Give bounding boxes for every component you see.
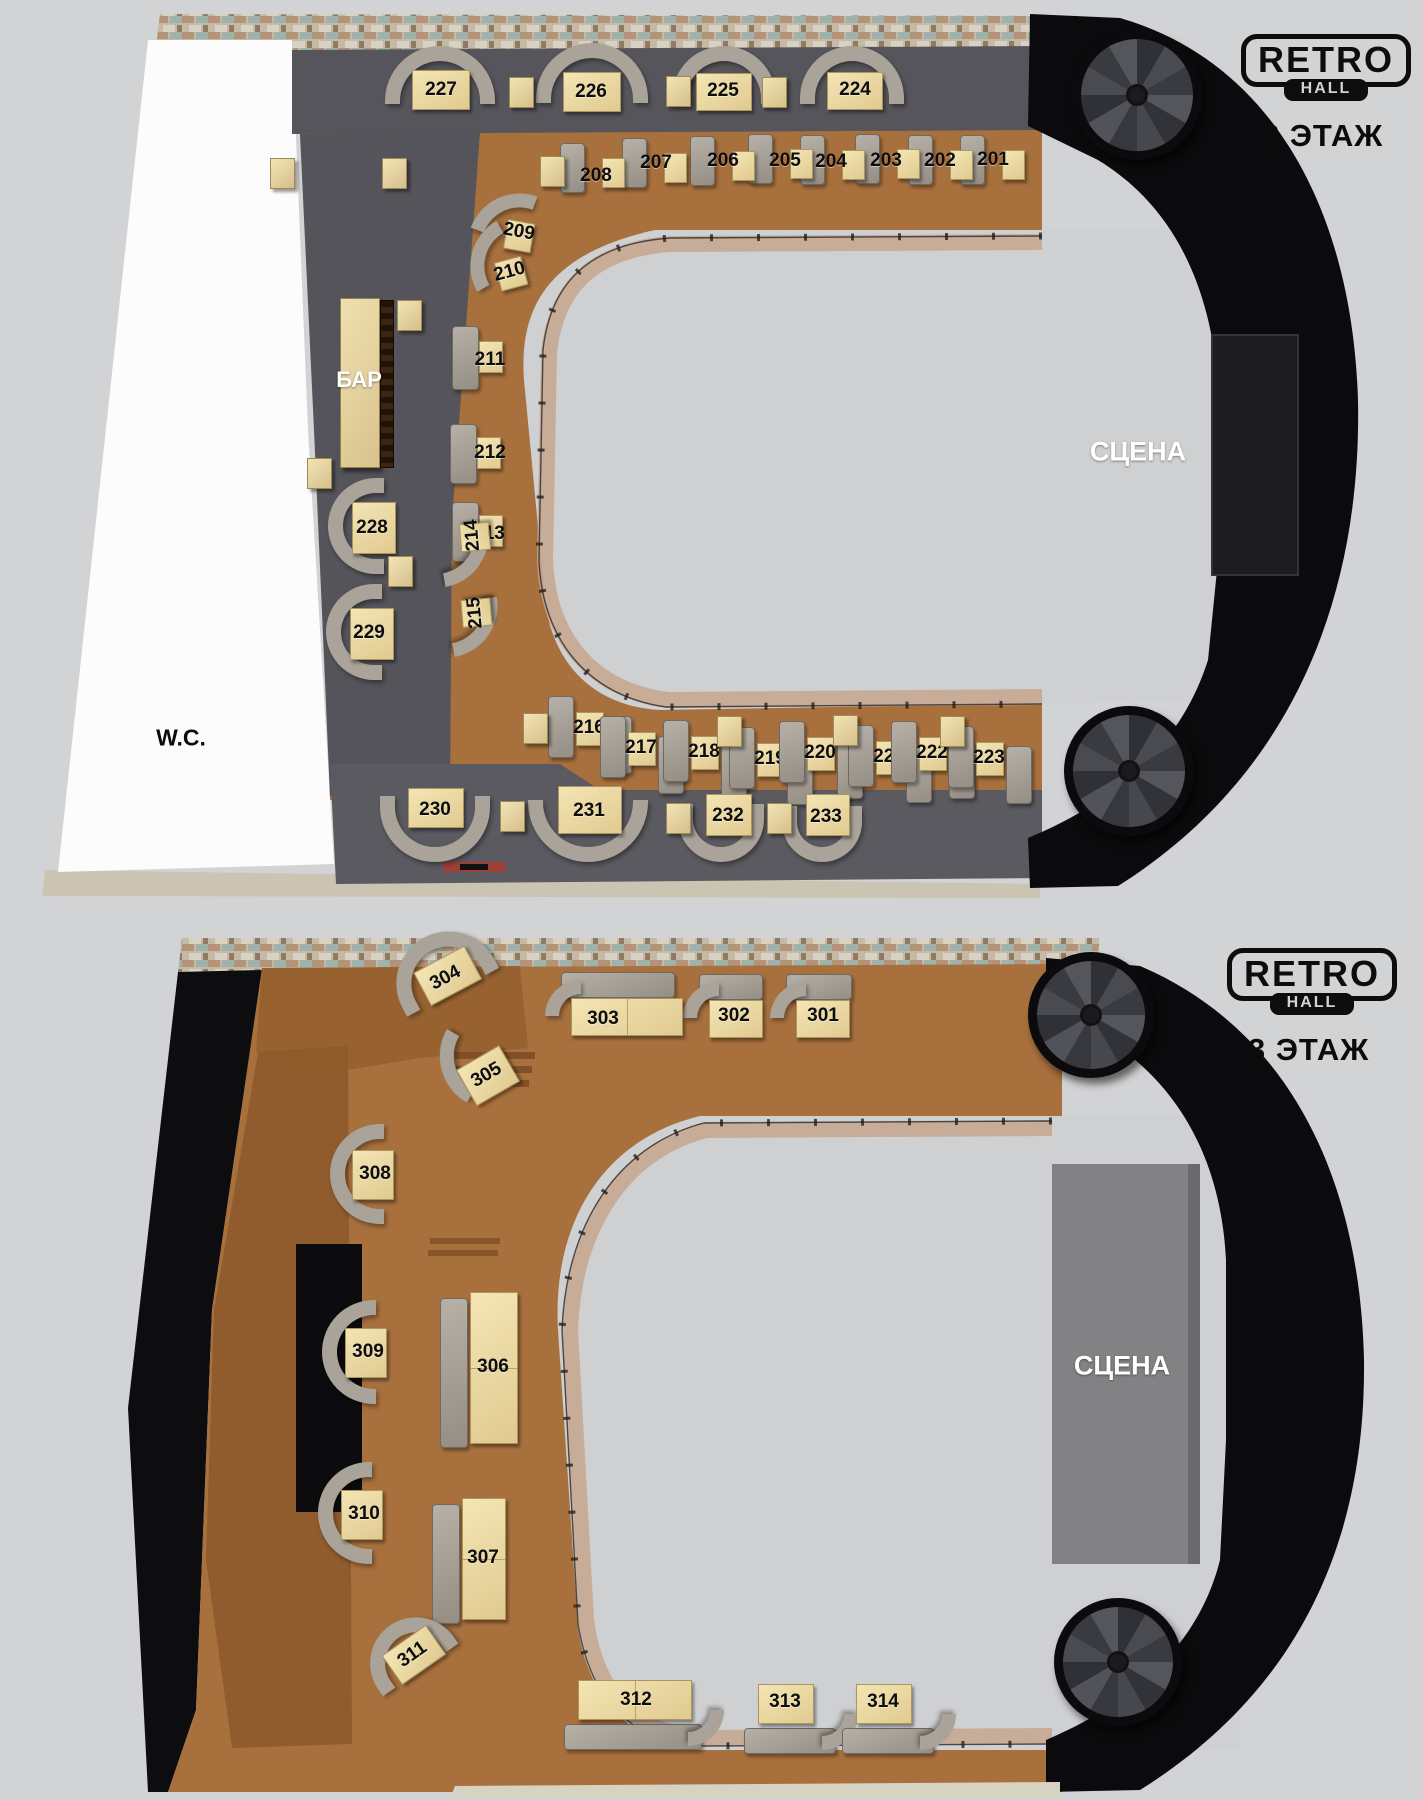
table-number: 218 xyxy=(688,741,720,763)
service-stand xyxy=(762,77,787,108)
sofa xyxy=(779,721,805,783)
service-stand xyxy=(388,556,413,587)
floor3-title: 3 ЭТАЖ xyxy=(1248,1032,1369,1068)
service-stand xyxy=(270,158,295,189)
floor3-stage-edge xyxy=(1188,1164,1200,1564)
table-number: 205 xyxy=(769,150,801,172)
table-number: 230 xyxy=(419,799,451,821)
bar-label: БАР xyxy=(336,367,382,393)
table-number: 206 xyxy=(707,150,739,172)
table-number: 220 xyxy=(804,742,836,764)
floor2-entrance-mat-center xyxy=(460,864,488,870)
table-number: 228 xyxy=(356,517,388,539)
sofa xyxy=(1006,746,1032,804)
table-number: 229 xyxy=(353,622,385,644)
service-stand xyxy=(500,801,525,832)
table-number: 233 xyxy=(810,806,842,828)
table-number: 224 xyxy=(839,79,871,101)
table-number: 306 xyxy=(477,1356,509,1378)
table-number: 225 xyxy=(707,80,739,102)
table-number: 212 xyxy=(474,442,506,464)
sofa xyxy=(440,1298,468,1448)
table-number: 308 xyxy=(359,1163,391,1185)
table-number: 223 xyxy=(973,747,1005,769)
logo-hall-text: HALL xyxy=(1270,993,1354,1015)
table-number: 203 xyxy=(870,150,902,172)
wc-label: W.C. xyxy=(156,725,206,752)
table-number: 201 xyxy=(977,149,1009,171)
table-number: 313 xyxy=(769,1691,801,1713)
service-stand xyxy=(833,715,858,746)
retro-hall-logo: RETRO HALL xyxy=(1224,948,1400,1015)
table-number: 312 xyxy=(620,1689,652,1711)
table-number: 309 xyxy=(352,1341,384,1363)
table-number: 204 xyxy=(815,151,847,173)
table-number: 303 xyxy=(587,1008,619,1030)
venue-seat-map: RETRO HALL 2 ЭТАЖ RETRO HALL 3 ЭТАЖ БАР … xyxy=(0,0,1423,1800)
service-stand xyxy=(540,156,565,187)
spiral-staircase[interactable] xyxy=(1028,952,1154,1078)
table-number: 211 xyxy=(475,349,506,371)
floor3-steps xyxy=(428,1250,498,1256)
service-stand xyxy=(382,158,407,189)
table-number: 226 xyxy=(575,81,607,103)
floor2-open-void xyxy=(523,230,1240,710)
service-stand xyxy=(666,76,691,107)
sofa xyxy=(548,696,574,758)
floor2-title: 2 ЭТАЖ xyxy=(1262,118,1383,154)
table-number: 217 xyxy=(625,737,657,759)
service-stand xyxy=(767,803,792,834)
table-number: 215 xyxy=(463,596,488,629)
table-number: 227 xyxy=(425,79,457,101)
table-number: 314 xyxy=(867,1691,899,1713)
service-stand xyxy=(397,300,422,331)
service-stand xyxy=(666,803,691,834)
service-stand xyxy=(940,716,965,747)
service-stand xyxy=(717,716,742,747)
service-stand xyxy=(509,77,534,108)
table-number: 202 xyxy=(924,150,956,172)
floor3-stage-label: СЦЕНА xyxy=(1074,1351,1170,1382)
table-number: 310 xyxy=(348,1503,380,1525)
floor2-stage-wall xyxy=(1212,335,1298,575)
spiral-staircase[interactable] xyxy=(1064,706,1194,836)
table-number: 214 xyxy=(460,518,485,551)
sofa xyxy=(891,721,917,783)
sofa xyxy=(450,424,477,484)
sofa xyxy=(600,716,626,778)
table-number: 231 xyxy=(573,800,605,822)
floor2-stage-label: СЦЕНА xyxy=(1090,437,1186,468)
table-number: 301 xyxy=(807,1005,839,1027)
table-number: 307 xyxy=(467,1547,499,1569)
spiral-staircase[interactable] xyxy=(1054,1598,1182,1726)
sofa xyxy=(663,720,689,782)
table-number: 302 xyxy=(718,1005,750,1027)
floor3-steps xyxy=(430,1238,500,1244)
logo-hall-text: HALL xyxy=(1284,79,1368,101)
sofa-long xyxy=(564,1724,702,1750)
table-number: 232 xyxy=(712,805,744,827)
service-stand xyxy=(307,458,332,489)
spiral-staircase[interactable] xyxy=(1072,30,1202,160)
table-number: 207 xyxy=(640,152,672,174)
floor-plan-base xyxy=(0,0,1423,1800)
sofa xyxy=(432,1504,460,1624)
table-number: 208 xyxy=(580,165,612,187)
service-stand xyxy=(523,713,548,744)
retro-hall-logo: RETRO HALL xyxy=(1238,34,1414,101)
